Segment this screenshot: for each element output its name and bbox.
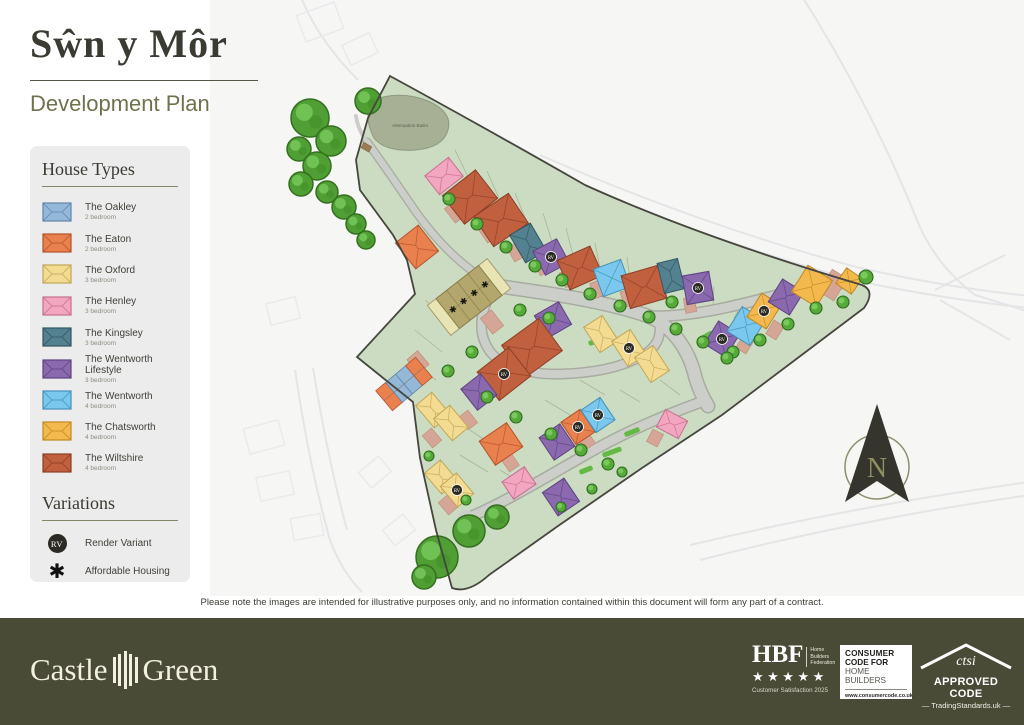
house-types-title: House Types: [42, 159, 178, 187]
hbf-name: HBF: [752, 644, 803, 667]
ctsi-approved-code: APPROVED CODE: [918, 676, 1014, 700]
house-type-name: The Kingsley: [85, 328, 143, 339]
tree-small: [543, 312, 555, 324]
house-type-icon: [42, 264, 72, 284]
house-type-bedrooms: 3 bedroom: [85, 277, 135, 284]
house-type-bedrooms: 4 bedroom: [85, 434, 156, 441]
disclaimer-text: Please note the images are intended for …: [0, 597, 1024, 608]
tree-small: [666, 296, 678, 308]
ctsi-name: ctsi: [956, 654, 976, 669]
attenuation-basin-label: Attenuation Basin: [392, 123, 428, 128]
house-type-bedrooms: 3 bedroom: [85, 340, 143, 347]
house-type-bedrooms: 4 bedroom: [85, 403, 153, 410]
house-type-icon: [42, 202, 72, 222]
tree-small: [810, 302, 822, 314]
rv-badge-label: RV: [575, 426, 582, 431]
house-type-icon: [42, 233, 72, 253]
ctsi-roof-icon: ctsi: [918, 638, 1014, 670]
tree-small: [481, 391, 493, 403]
legend-panel: House Types The Oakley 2 bedroom The Eat…: [30, 146, 190, 582]
legend-house-type: The Oakley 2 bedroom: [42, 196, 178, 227]
rv-badge-label: RV: [501, 373, 508, 378]
rv-badge-label: RV: [761, 310, 768, 315]
house-type-icon: [42, 390, 72, 410]
tree-small: [837, 296, 849, 308]
tree-small: [442, 365, 454, 377]
tree-small: [500, 241, 512, 253]
rv-badge-label: RV: [595, 414, 602, 419]
tree-small: [575, 444, 587, 456]
rv-badge-label: RV: [695, 287, 702, 292]
legend-house-type: The Wentworth Lifestyle 3 bedroom: [42, 353, 178, 384]
affordable-housing-icon: ✱: [49, 562, 66, 582]
house-type-icon: [42, 296, 72, 316]
legend-house-type: The Eaton 2 bedroom: [42, 227, 178, 258]
house-type-bedrooms: 2 bedroom: [85, 214, 136, 221]
hbf-org: HomeBuildersFederation: [806, 647, 838, 667]
tree-small: [754, 334, 766, 346]
house-type-icon: [42, 359, 72, 379]
tree-small: [587, 484, 597, 494]
tree: [289, 172, 313, 196]
tree-small: [782, 318, 794, 330]
house-type-name: The Henley: [85, 296, 136, 307]
tree-small: [859, 270, 873, 284]
legend-house-type: The Henley 3 bedroom: [42, 290, 178, 321]
tree-small: [643, 311, 655, 323]
brand-green: Green: [143, 652, 219, 688]
tree-small: [514, 304, 526, 316]
page-subtitle: Development Plan: [30, 91, 270, 117]
variations-list: RV Render Variant✱ Affordable Housing: [42, 530, 178, 586]
tree-small: [614, 300, 626, 312]
tree-small: [556, 502, 566, 512]
rv-badge-label: RV: [719, 338, 726, 343]
legend-house-type: The Oxford 3 bedroom: [42, 259, 178, 290]
tree-small: [584, 288, 596, 300]
house-type-name: The Wentworth Lifestyle: [85, 354, 178, 376]
legend-variation: ✱ Affordable Housing: [42, 558, 178, 586]
hbf-logo: HBF HomeBuildersFederation ★★★★★ Custome…: [752, 644, 838, 694]
ctsi-logo: ctsi APPROVED CODE — TradingStandards.uk…: [918, 638, 1014, 710]
rv-badge-label: RV: [626, 347, 633, 352]
footer: Castle Green HBF HomeBuildersFederation …: [0, 618, 1024, 725]
tree-small: [545, 428, 557, 440]
tree-small: [602, 458, 614, 470]
legend-house-type: The Kingsley 3 bedroom: [42, 322, 178, 353]
legend-variation: RV Render Variant: [42, 530, 178, 558]
tree-small: [697, 336, 709, 348]
brand-castle: Castle: [30, 652, 108, 688]
house-type-bedrooms: 3 bedroom: [85, 377, 178, 384]
house-type-name: The Wiltshire: [85, 453, 143, 464]
tree: [412, 565, 436, 589]
tree: [316, 126, 346, 156]
house-type-name: The Chatsworth: [85, 422, 156, 433]
ctsi-trading-standards: — TradingStandards.uk —: [918, 701, 1014, 710]
house-type-name: The Eaton: [85, 234, 131, 245]
consumer-code-line3: HOME BUILDERS: [845, 667, 907, 685]
consumer-code-line1: CONSUMER: [845, 649, 907, 658]
tree-small: [556, 274, 568, 286]
variation-label: Affordable Housing: [85, 566, 170, 577]
render-variant-icon: RV: [48, 534, 67, 553]
consumer-code-line2: CODE FOR: [845, 658, 907, 667]
house-type-name: The Wentworth: [85, 391, 153, 402]
title-divider: [30, 80, 258, 81]
legend-house-type: The Chatsworth 4 bedroom: [42, 416, 178, 447]
house-type-icon: [42, 421, 72, 441]
rv-badge-label: RV: [548, 256, 555, 261]
page-title: Sŵn y Môr: [30, 22, 270, 66]
variations-title: Variations: [42, 493, 178, 521]
house-type-bedrooms: 2 bedroom: [85, 246, 131, 253]
tree-small: [721, 352, 733, 364]
consumer-code-url: www.consumercode.co.uk: [845, 689, 907, 699]
house-type-name: The Oakley: [85, 202, 136, 213]
castle-green-logo: Castle Green: [30, 651, 218, 689]
portcullis-bars-icon: [113, 651, 138, 689]
tree-small: [529, 260, 541, 272]
tree-small: [471, 218, 483, 230]
tree-small: [670, 323, 682, 335]
house-type-bedrooms: 3 bedroom: [85, 308, 136, 315]
north-label: N: [867, 453, 887, 484]
rv-badge-label: RV: [454, 489, 461, 494]
tree: [453, 515, 485, 547]
tree-small: [617, 467, 627, 477]
house-type-icon: [42, 453, 72, 473]
header: Sŵn y Môr Development Plan: [30, 22, 270, 117]
tree-small: [466, 346, 478, 358]
hbf-stars-icon: ★★★★★: [752, 669, 838, 685]
consumer-code-logo: CONSUMER CODE FOR HOME BUILDERS www.cons…: [840, 645, 912, 699]
house-type-name: The Oxford: [85, 265, 135, 276]
tree: [485, 505, 509, 529]
legend-house-type: The Wiltshire 4 bedroom: [42, 447, 178, 478]
tree-small: [424, 451, 434, 461]
tree-small: [443, 193, 455, 205]
house-type-bedrooms: 4 bedroom: [85, 465, 143, 472]
tree-small: [510, 411, 522, 423]
variation-label: Render Variant: [85, 538, 152, 549]
house-type-icon: [42, 327, 72, 347]
house-types-list: The Oakley 2 bedroom The Eaton 2 bedroom…: [42, 196, 178, 479]
legend-house-type: The Wentworth 4 bedroom: [42, 384, 178, 415]
tree-small: [461, 495, 471, 505]
hbf-caption: Customer Satisfaction 2025: [752, 687, 838, 694]
tree: [357, 231, 375, 249]
